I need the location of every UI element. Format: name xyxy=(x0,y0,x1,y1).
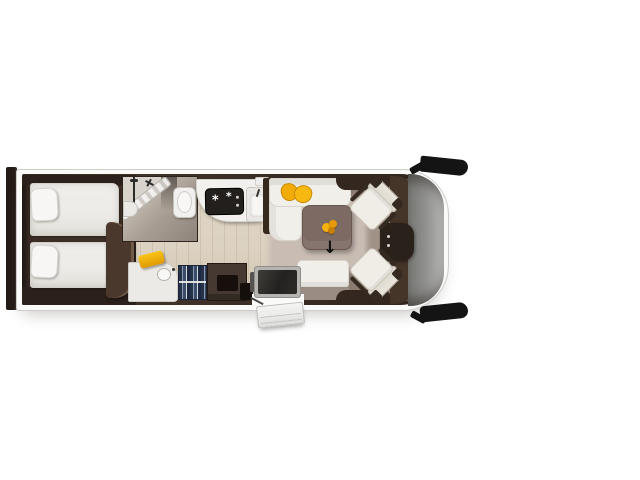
wardrobe-hanging-clothes xyxy=(178,265,207,300)
toilet xyxy=(173,187,196,218)
pillow-top-bed xyxy=(30,187,59,221)
tv-unit xyxy=(254,266,301,298)
floorplan-stage: * * ↓ xyxy=(0,0,640,480)
tv-screen xyxy=(258,270,297,294)
vanity-faucet-icon xyxy=(172,268,175,271)
pillow-bottom-bed xyxy=(30,244,59,278)
wing-mirror-bottom xyxy=(419,302,468,323)
entry-step xyxy=(256,302,305,329)
bathroom xyxy=(122,176,198,242)
burner-icon: * xyxy=(226,193,232,201)
kitchen-hob: * * xyxy=(205,188,244,216)
wing-mirror-top xyxy=(419,156,468,177)
table-centrepiece xyxy=(328,227,335,234)
travel-bench-seat xyxy=(297,260,349,287)
vanity-basin xyxy=(157,268,171,281)
entrance-arrow-icon: ↓ xyxy=(322,240,338,258)
cabinet-open-shelf xyxy=(217,275,238,291)
burner-icon: * xyxy=(212,197,219,205)
washroom-vanity xyxy=(128,262,178,302)
